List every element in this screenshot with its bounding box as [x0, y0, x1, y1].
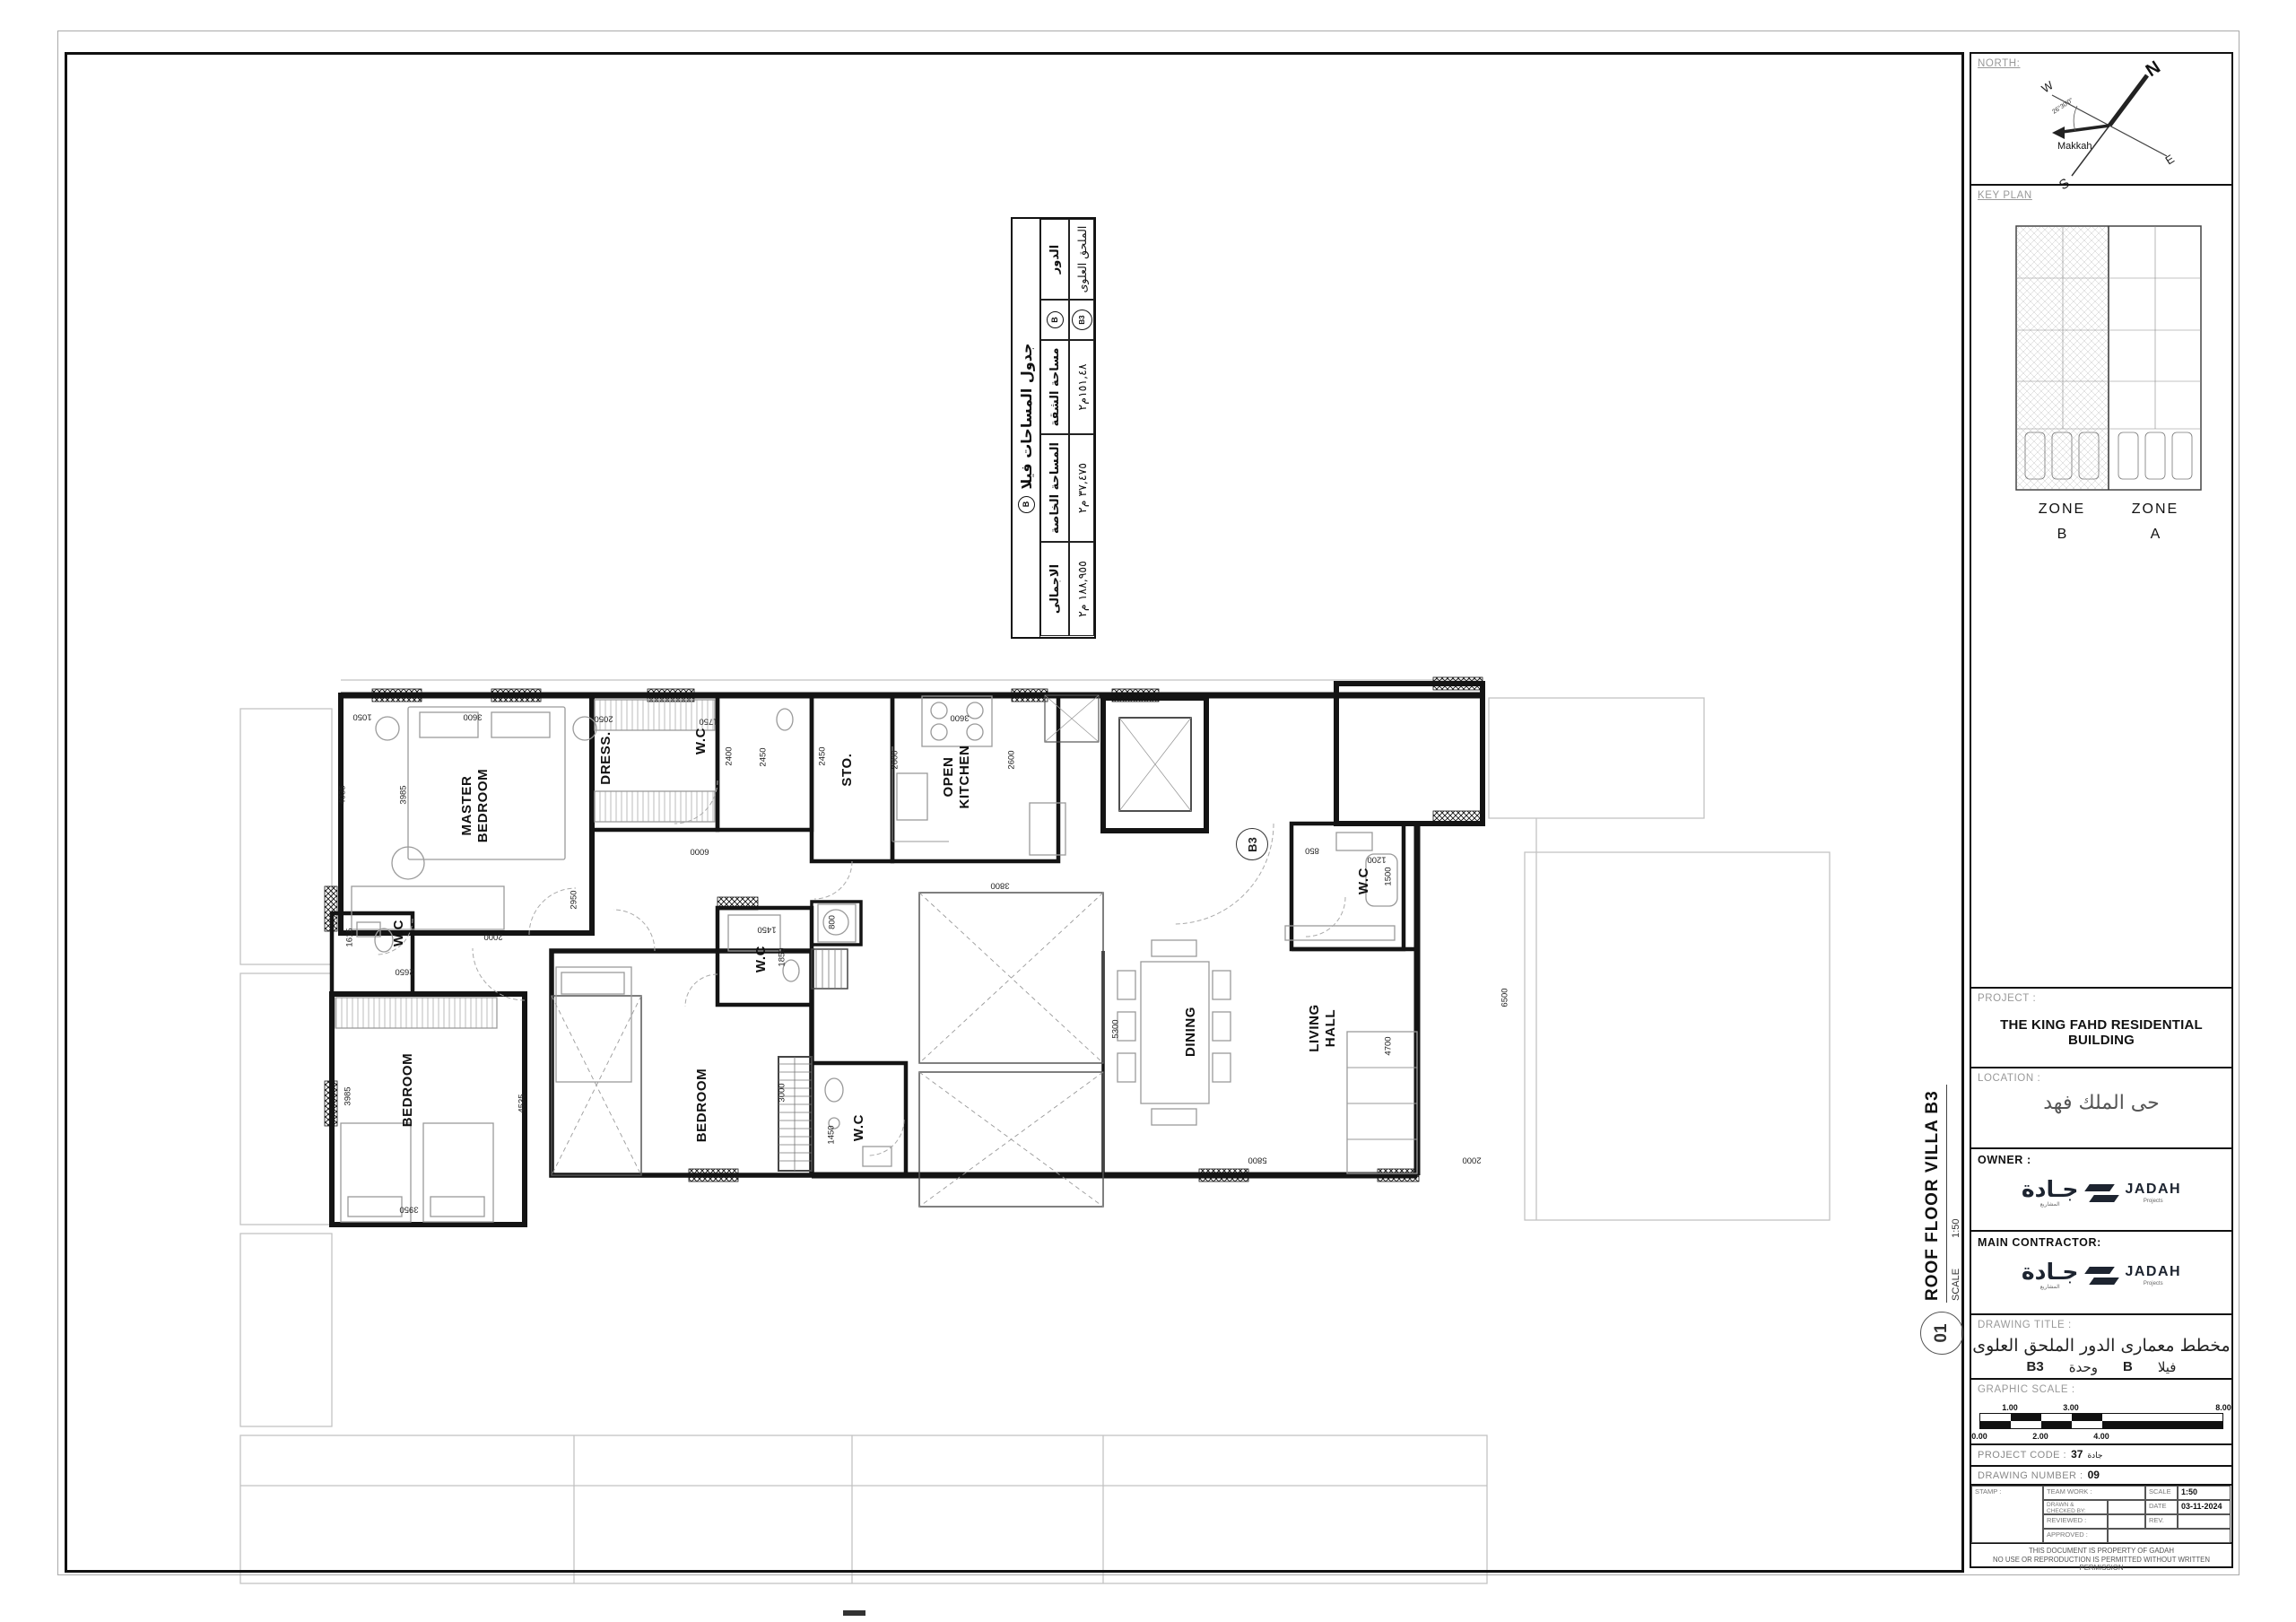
zone-b-letter: B — [2057, 527, 2067, 542]
walls — [332, 684, 1483, 1225]
key-plan-drawing: ZONE B ZONE A — [2016, 226, 2201, 542]
zone-a-label: ZONE — [2132, 501, 2179, 517]
page: { "colors": {"wall":"#141414","surround"… — [0, 0, 2296, 1622]
furniture — [335, 696, 1417, 1222]
compass-makkah: Makkah — [2057, 141, 2092, 152]
compass-e: E — [2162, 152, 2177, 167]
bottom-registration-mark — [843, 1610, 865, 1616]
zone-b-label: ZONE — [2039, 501, 2085, 517]
north-compass-icon: N W S E 26°30'0" Makkah — [2039, 57, 2177, 193]
compass-angle: 26°30'0" — [2051, 96, 2075, 115]
compass-s: S — [2057, 176, 2073, 194]
floor-plan-drawing: N W S E 26°30'0" Makkah ZONE B ZONE A — [0, 0, 2296, 1622]
compass-w: W — [2039, 78, 2056, 96]
zone-a-letter: A — [2151, 527, 2161, 542]
surrounding-roof-outline — [240, 680, 1830, 1583]
